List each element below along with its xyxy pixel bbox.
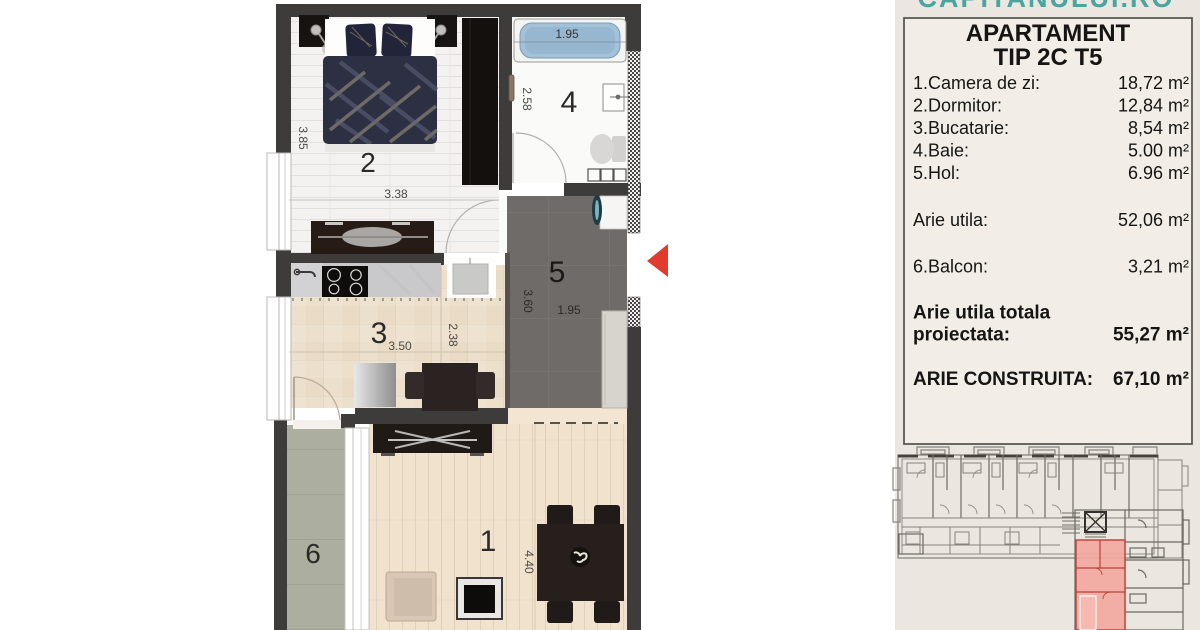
svg-text:APARTAMENT: APARTAMENT [966,20,1131,47]
svg-text:55,27 m²: 55,27 m² [1113,325,1189,346]
svg-text:4.40: 4.40 [522,550,536,574]
svg-text:Arie utila totala: Arie utila totala [913,303,1051,324]
svg-text:2.Dormitor:: 2.Dormitor: [913,96,1002,116]
svg-text:1.95: 1.95 [557,303,581,317]
svg-text:3.60: 3.60 [521,289,535,313]
svg-text:2: 2 [360,147,376,178]
svg-text:1.95: 1.95 [555,27,579,41]
svg-text:4.Baie:: 4.Baie: [913,141,969,161]
svg-text:proiectata:: proiectata: [913,325,1010,346]
svg-text:5: 5 [549,256,566,289]
svg-text:6: 6 [305,538,321,569]
svg-text:3,21 m²: 3,21 m² [1128,257,1189,277]
svg-text:67,10 m²: 67,10 m² [1113,369,1189,390]
svg-text:CAPITANULUI.RO: CAPITANULUI.RO [918,0,1175,13]
svg-text:5.00 m²: 5.00 m² [1128,141,1189,161]
svg-text:18,72 m²: 18,72 m² [1118,73,1189,93]
svg-text:8,54 m²: 8,54 m² [1128,118,1189,138]
svg-text:2.38: 2.38 [446,323,460,347]
svg-text:3.85: 3.85 [296,126,310,150]
svg-text:5.Hol:: 5.Hol: [913,163,960,183]
svg-text:52,06 m²: 52,06 m² [1118,210,1189,230]
svg-text:4: 4 [561,86,578,119]
svg-text:ARIE CONSTRUITA:: ARIE CONSTRUITA: [913,369,1093,390]
svg-text:Arie utila:: Arie utila: [913,210,988,230]
svg-text:6.Balcon:: 6.Balcon: [913,257,988,277]
svg-text:1: 1 [480,525,497,558]
svg-text:3.Bucatarie:: 3.Bucatarie: [913,118,1009,138]
svg-text:12,84 m²: 12,84 m² [1118,96,1189,116]
svg-text:2.58: 2.58 [520,87,534,111]
svg-text:1.Camera de zi:: 1.Camera de zi: [913,73,1040,93]
svg-text:6.96 m²: 6.96 m² [1128,163,1189,183]
svg-text:TIP 2C T5: TIP 2C T5 [994,44,1103,71]
svg-text:3.38: 3.38 [384,187,408,201]
svg-text:3.50: 3.50 [388,339,412,353]
svg-text:3: 3 [371,317,388,350]
